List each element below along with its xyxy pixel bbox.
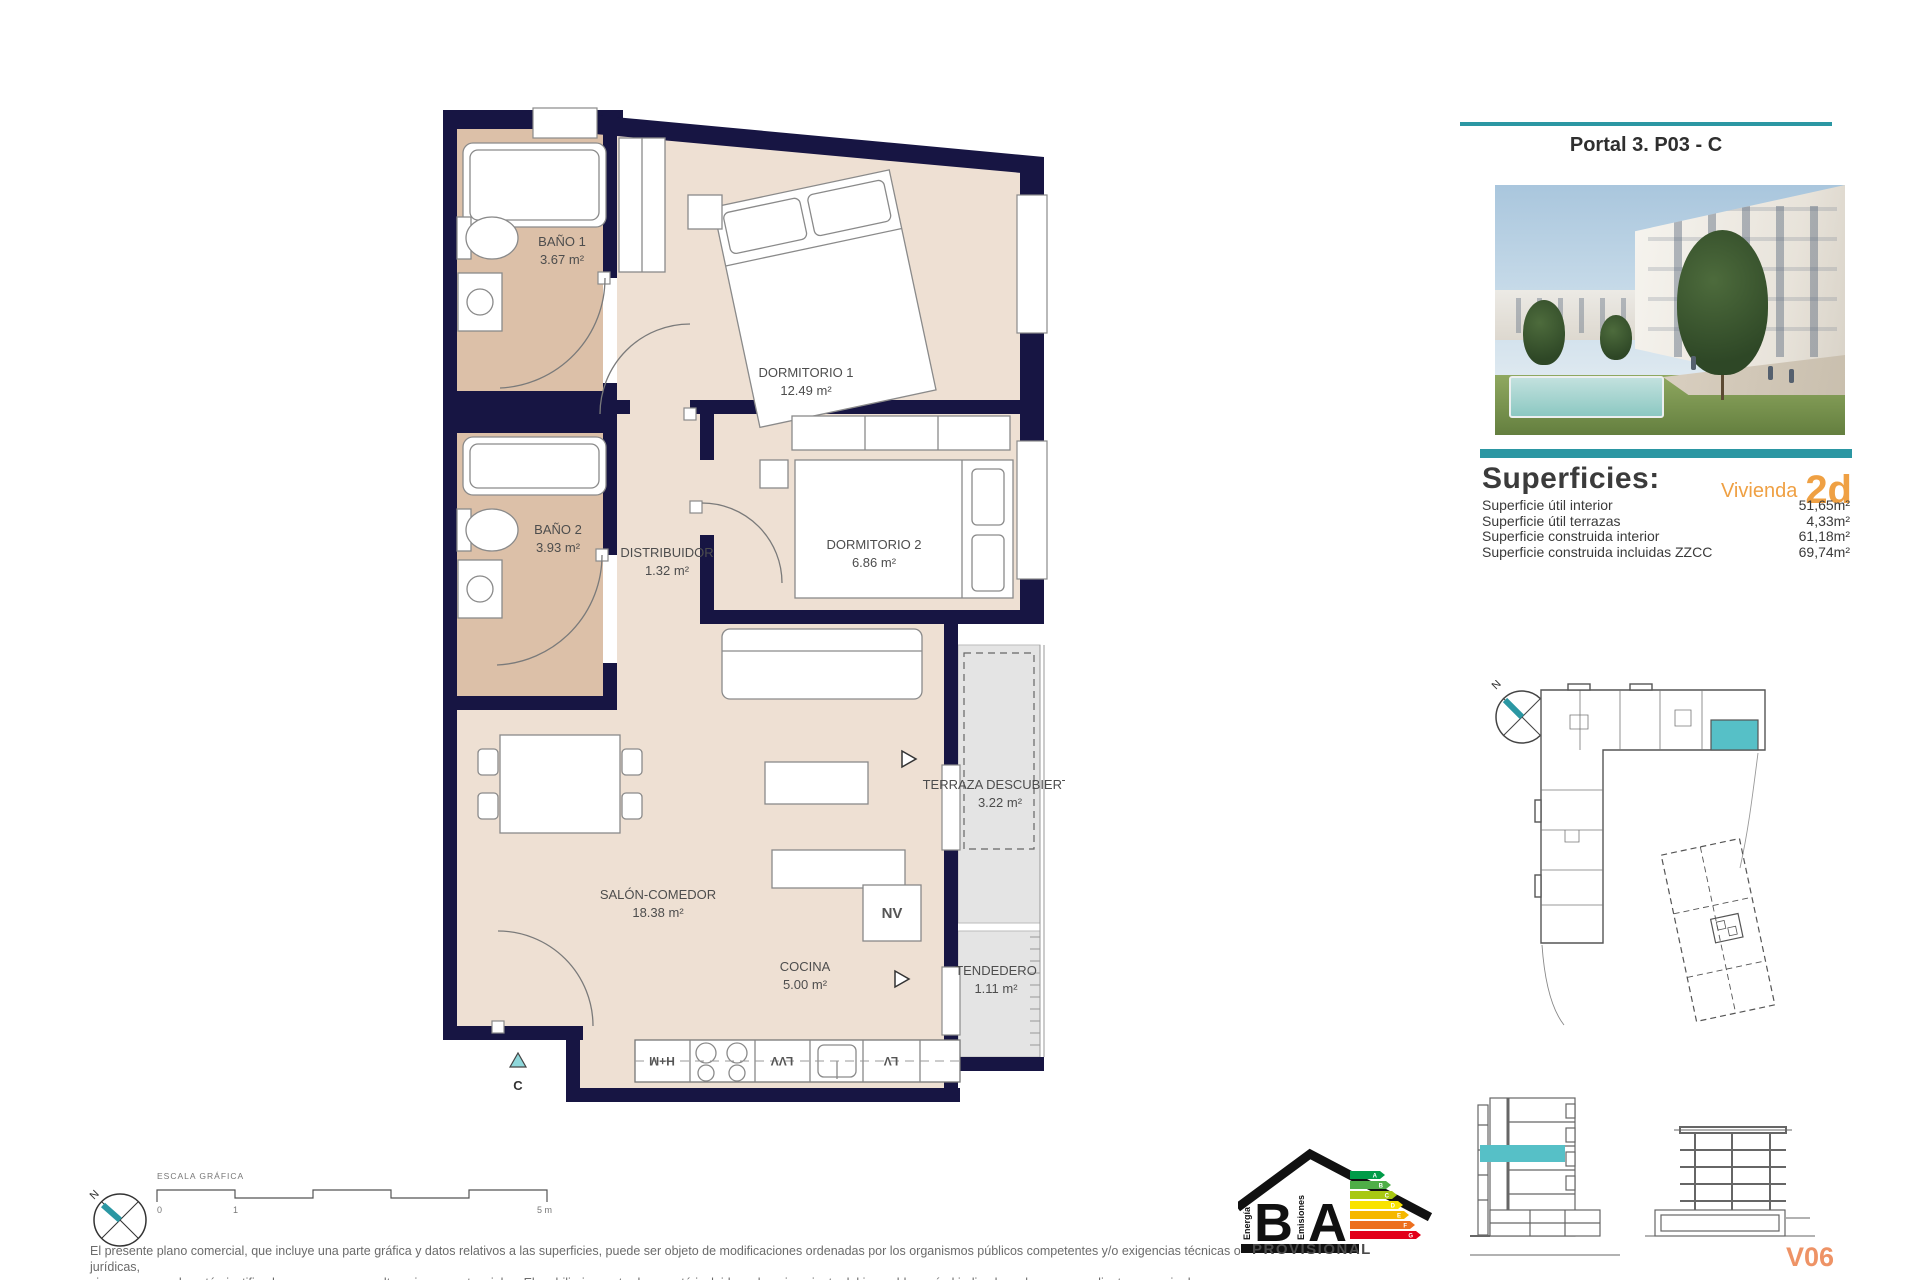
appliance-label-lvv: LVV	[771, 1054, 793, 1068]
room-label: DORMITORIO 2	[826, 537, 921, 552]
disclaimer-text: El presente plano comercial, que incluye…	[90, 1243, 1250, 1280]
room-label: TENDEDERO	[955, 963, 1037, 978]
room-area: 6.86 m²	[852, 555, 897, 570]
scale-bar: ESCALA GRÁFICA 0 1 5 m	[145, 1168, 575, 1216]
site-highlighted-unit	[1711, 720, 1758, 750]
appliance-label-hm: H+M	[649, 1054, 675, 1068]
wardrobe-2	[792, 416, 1010, 450]
room-label: TERRAZA DESCUBIERTA	[923, 777, 1065, 792]
superficies-row: Superficie útil terrazas 4,33m²	[1482, 514, 1850, 530]
energy-grade-letter: G	[1408, 1234, 1413, 1240]
energy-grade-letter: F	[1403, 1224, 1407, 1230]
sideboard	[772, 850, 905, 888]
disclaimer-line-2: siempre y cuando estén justificados y no…	[90, 1275, 1250, 1280]
energy-grade-bar	[1350, 1201, 1403, 1209]
site-plot-curve	[1542, 945, 1564, 1025]
scale-tick-1: 1	[233, 1205, 238, 1215]
room-label: SALÓN-COMEDOR	[600, 887, 716, 902]
room-label: BAÑO 2	[534, 522, 582, 537]
sofa	[722, 629, 922, 699]
superficies-title: Superficies:	[1482, 462, 1660, 496]
superficies-row-label: Superficie construida incluidas ZZCC	[1482, 545, 1712, 561]
scale-bar-line	[157, 1190, 547, 1202]
room-area: 1.11 m²	[974, 981, 1018, 996]
header-accent-line	[1460, 122, 1832, 126]
energy-grade-letter: E	[1397, 1214, 1401, 1220]
energy-grade-bar	[1350, 1171, 1385, 1179]
photo-tree	[1523, 300, 1565, 365]
site-compass-north: N	[1490, 680, 1504, 692]
superficies-row: Superficie útil interior 51,65m²	[1482, 498, 1850, 514]
page-title: Portal 3. P03 - C	[1460, 134, 1832, 157]
room-area: 1.32 m²	[645, 563, 690, 578]
hob-burner	[729, 1065, 745, 1081]
room-label: COCINA	[780, 959, 831, 974]
room-label: DISTRIBUIDOR	[620, 545, 713, 560]
superficies-row-value: 4,33m²	[1806, 514, 1850, 530]
superficies-table: Superficie útil interior 51,65m² Superfi…	[1482, 498, 1850, 560]
section-left	[1470, 1098, 1620, 1255]
hob-burner	[698, 1065, 714, 1081]
hob-burner	[727, 1043, 747, 1063]
facade-edge-lines	[1040, 645, 1044, 1057]
energy-caption-right: Emisiones	[1296, 1195, 1306, 1240]
appliance-label-lv: LV	[884, 1054, 898, 1068]
site-boundary-line	[1740, 753, 1758, 868]
energy-grade-bar	[1350, 1191, 1397, 1199]
dining-table	[500, 735, 620, 833]
superficies-row-value: 69,74m²	[1799, 545, 1850, 561]
photo-person	[1768, 366, 1773, 380]
compass-north-label: N	[88, 1188, 102, 1202]
energy-grade-letter: A	[1373, 1174, 1378, 1180]
room-area: 12.49 m²	[780, 383, 832, 398]
superficies-row-value: 51,65m²	[1799, 498, 1850, 514]
nightstand-1	[688, 195, 722, 229]
room-area: 18.38 m²	[632, 905, 684, 920]
photo-person	[1691, 356, 1696, 370]
energy-status: PROVISIONAL	[1252, 1241, 1372, 1258]
floor-plan: BAÑO 1 3.67 m² DORMITORIO 1 12.49 m² BAÑ…	[440, 105, 1065, 1110]
room-area: 3.93 m²	[536, 540, 581, 555]
unit-code-label: V06	[1770, 1242, 1850, 1273]
vent-shaft-label: NV	[882, 905, 903, 922]
photo-tree	[1600, 315, 1632, 360]
superficies-row: Superficie construida incluidas ZZCC 69,…	[1482, 545, 1850, 561]
photo-tree	[1677, 230, 1768, 375]
site-building-dashed	[1661, 839, 1775, 1022]
room-label: DORMITORIO 1	[758, 365, 853, 380]
superficies-row-label: Superficie construida interior	[1482, 529, 1659, 545]
coffee-table	[765, 762, 868, 804]
superficies-row-label: Superficie útil interior	[1482, 498, 1613, 514]
room-label: BAÑO 1	[538, 234, 586, 249]
energy-caption-left: Energía	[1242, 1206, 1252, 1240]
site-compass-icon: N	[1490, 680, 1548, 743]
toilet-2	[466, 509, 518, 551]
site-plan: N	[1470, 680, 1850, 1280]
energy-grade-bar	[1350, 1181, 1391, 1189]
brochure-page: BAÑO 1 3.67 m² DORMITORIO 1 12.49 m² BAÑ…	[0, 0, 1920, 1280]
room-area: 3.22 m²	[978, 795, 1023, 810]
section-right	[1645, 1127, 1815, 1236]
energy-grade-letter: B	[1379, 1184, 1384, 1190]
energy-grade-letter: C	[1385, 1194, 1390, 1200]
hob-burner	[696, 1043, 716, 1063]
energy-grade-letter: D	[1391, 1204, 1396, 1210]
superficies-row: Superficie construida interior 61,18m²	[1482, 529, 1850, 545]
entrance-triangle-icon	[510, 1053, 526, 1067]
disclaimer-line-1: El presente plano comercial, que incluye…	[90, 1243, 1250, 1275]
superficies-row-label: Superficie útil terrazas	[1482, 514, 1621, 530]
room-area: 3.67 m²	[540, 252, 585, 267]
room-area: 5.00 m²	[783, 977, 828, 992]
building-photo	[1495, 185, 1845, 435]
scale-tick-5: 5 m	[537, 1205, 552, 1215]
toilet-1	[466, 217, 518, 259]
section-highlighted-floor	[1480, 1145, 1565, 1162]
scale-tick-0: 0	[157, 1205, 162, 1215]
superficies-row-value: 61,18m²	[1799, 529, 1850, 545]
scale-bar-title: ESCALA GRÁFICA	[157, 1171, 244, 1181]
superficies-accent-bar	[1480, 449, 1852, 458]
photo-pool	[1509, 376, 1664, 418]
photo-person	[1789, 369, 1794, 383]
nightstand-2	[760, 460, 788, 488]
entrance-label: C	[513, 1078, 523, 1093]
